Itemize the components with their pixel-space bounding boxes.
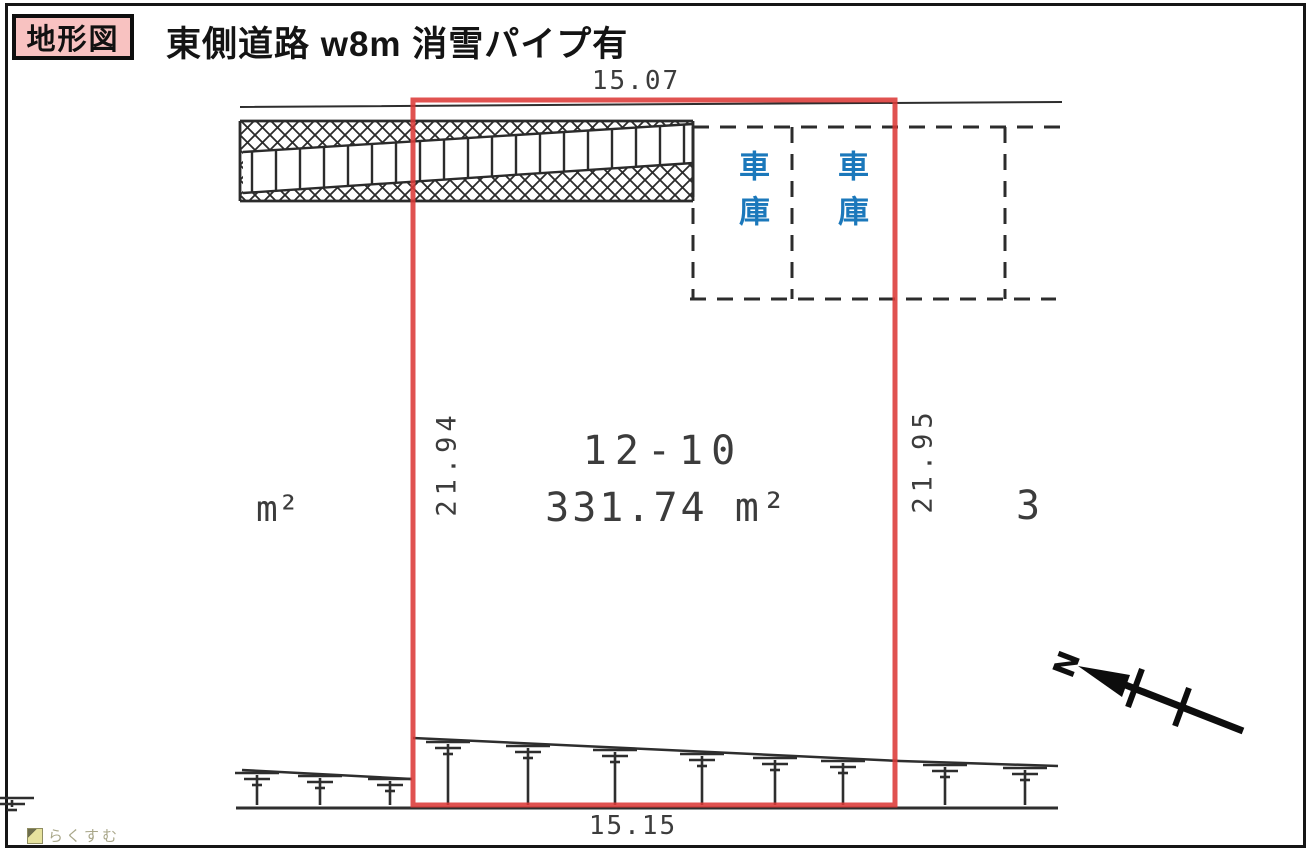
road-hatch-band [240,121,693,201]
dimension-bottom: 15.15 [571,811,695,841]
parcel-number: 12-10 [563,428,763,474]
garage-label-2: 車庫 [828,150,873,280]
road-edge-line [240,102,1062,107]
dimension-top: 15.07 [574,66,698,96]
watermark-logo-icon [27,828,43,844]
dimension-right: 21.95 [908,401,939,521]
dimension-left: 21.94 [432,404,463,524]
north-arrow: N [1047,647,1243,731]
neighbor-area-unit: m² [256,489,299,530]
watermark: らくすむ [27,825,120,846]
north-label: N [1047,647,1089,683]
embankment-band [0,738,1058,810]
garage-label-1: 車庫 [729,150,774,280]
watermark-text: らくすむ [48,825,120,846]
parcel-area: 331.74 m² [517,485,817,531]
neighbor-lot-number: 3 [1016,483,1040,529]
